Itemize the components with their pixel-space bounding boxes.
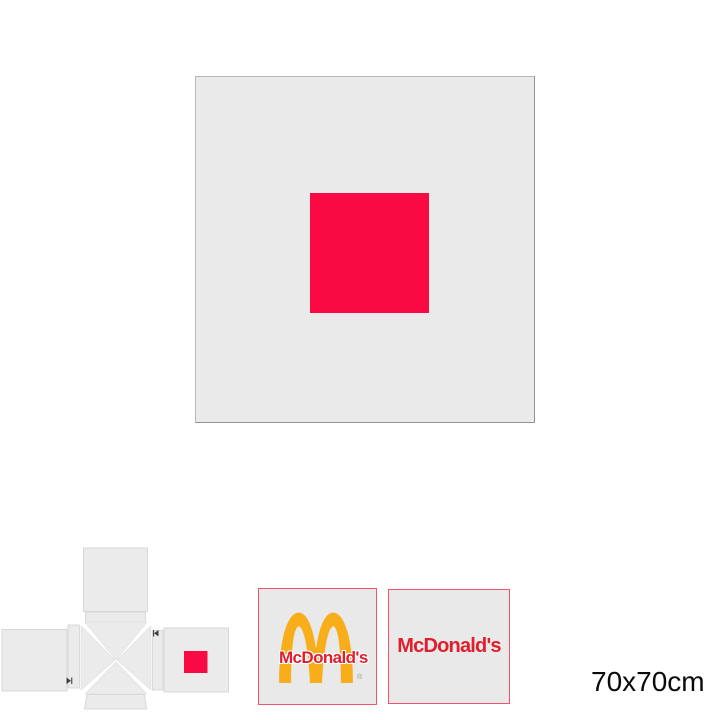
mcdonalds-wordmark: McDonald's	[397, 635, 500, 658]
design-preview-canvas[interactable]	[195, 76, 535, 423]
logo-swatch-arches[interactable]: McDonald's ®	[258, 588, 377, 705]
net-left-strip	[68, 625, 80, 688]
placed-design-square[interactable]	[310, 193, 429, 313]
golden-arches-icon	[273, 604, 359, 683]
product-size-label: 70x70cm	[591, 666, 705, 698]
template-net-diagram	[0, 540, 240, 720]
logo-swatch-wordmark[interactable]: McDonald's	[388, 589, 510, 704]
registered-trademark-symbol: ®	[357, 674, 362, 681]
net-right-strip	[153, 631, 164, 691]
mcdonalds-wordmark: McDonald's	[279, 648, 368, 668]
net-top-panel	[84, 548, 148, 612]
net-print-area-square	[184, 651, 208, 673]
net-left-panel	[2, 630, 67, 692]
net-bottom-flap	[85, 695, 147, 710]
net-top-strip	[86, 612, 146, 623]
